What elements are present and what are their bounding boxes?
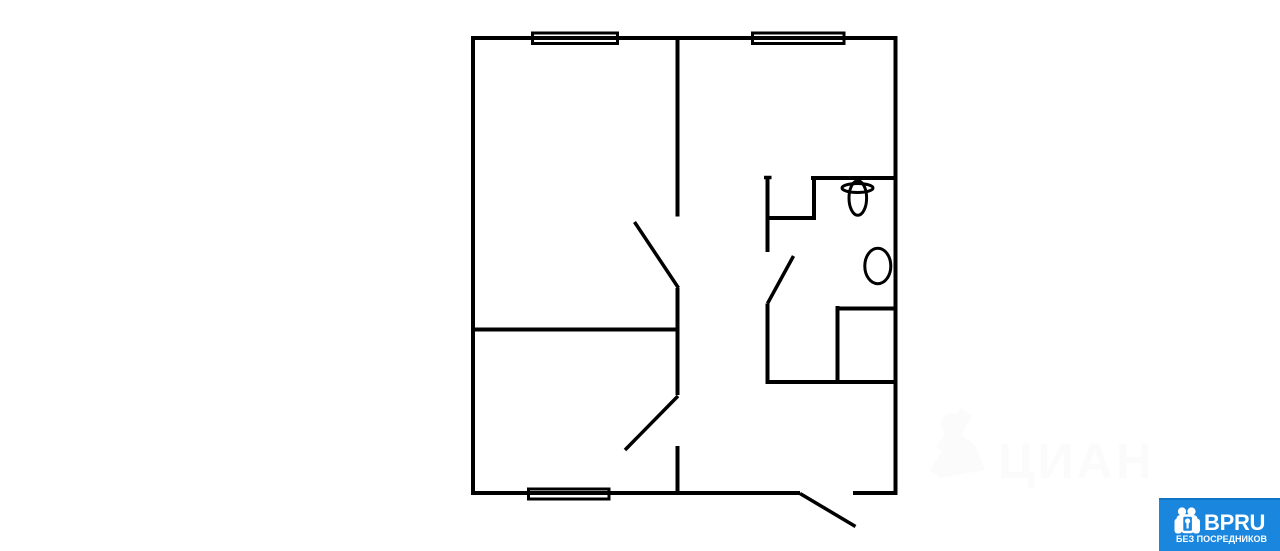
- svg-text:ЦИАН: ЦИАН: [998, 433, 1155, 489]
